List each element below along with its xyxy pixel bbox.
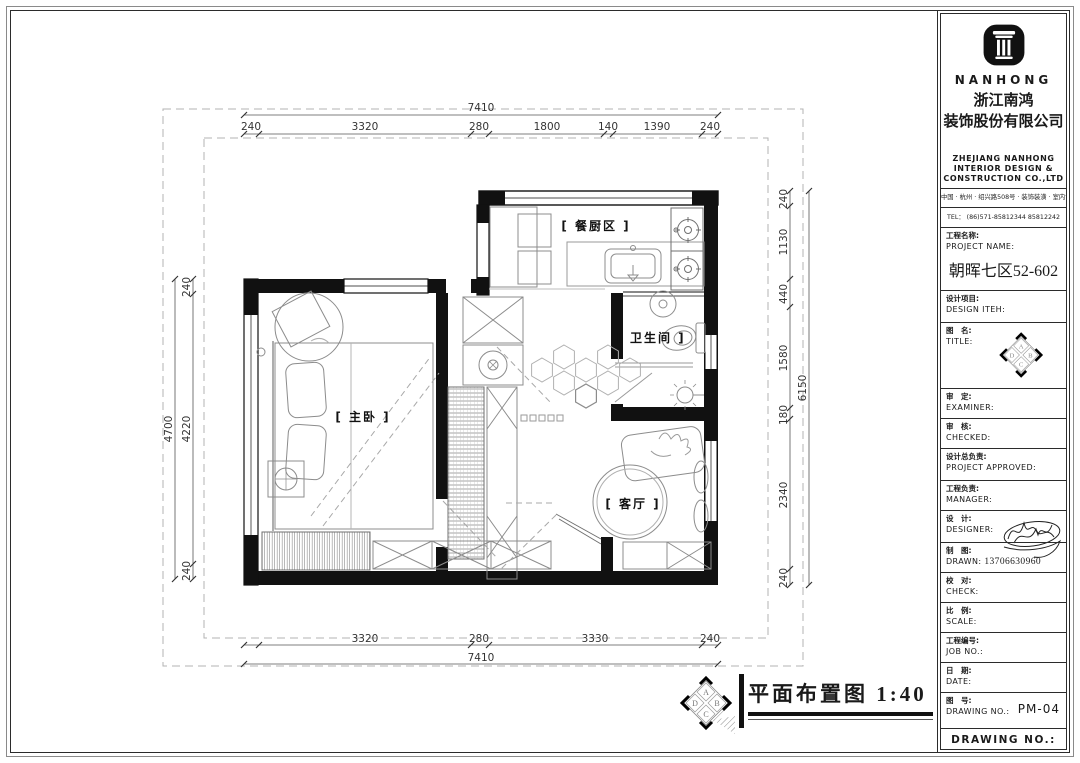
room-label-bathroom: [ 卫生间 ] bbox=[616, 330, 685, 345]
dim-top-4: 140 bbox=[598, 121, 618, 133]
floor-plan-svg: 7410 240 3320 280 1800 140 1390 240 3320… bbox=[11, 11, 937, 752]
svg-text:B: B bbox=[1028, 353, 1033, 360]
dim-bottom-1: 280 bbox=[469, 633, 489, 645]
dim-right-4: 180 bbox=[778, 405, 790, 425]
dim-left-1: 4220 bbox=[181, 416, 193, 443]
designer-row: 设 计: DESIGNER: bbox=[941, 510, 1066, 542]
abcd-diamond-logo: A B C D bbox=[996, 329, 1048, 381]
svg-text:C: C bbox=[1019, 362, 1024, 369]
drawn-row: 制 图: DRAWN: 13706630960 bbox=[941, 542, 1066, 572]
compass-letter-d: D bbox=[692, 699, 698, 708]
room-label-living: [ 客厅 ] bbox=[605, 496, 660, 511]
check-row: 校 对: CHECK: bbox=[941, 572, 1066, 602]
checked-row: 审 核: CHECKED: bbox=[941, 418, 1066, 448]
company-name-en: ZHEJIANG NANHONG INTERIOR DESIGN & CONST… bbox=[941, 152, 1066, 188]
title-block: NANHONG 浙江南鸿 装饰股份有限公司 ZHEJIANG NANHONG I… bbox=[937, 11, 1069, 752]
dim-top-2: 280 bbox=[469, 121, 489, 133]
compass-letter-a: A bbox=[703, 688, 709, 697]
examiner-row: 审 定: EXAMINER: bbox=[941, 388, 1066, 418]
date-row: 日 期: DATE: bbox=[941, 662, 1066, 692]
dim-left-2: 240 bbox=[181, 561, 193, 581]
room-labels: [ 餐厨区 ] [ 卫生间 ] [ 主卧 ] [ 客厅 ] bbox=[335, 218, 685, 511]
dim-bottom-2: 3330 bbox=[582, 633, 609, 645]
footer-rule-thin bbox=[748, 719, 933, 720]
design-item-row: 设计项目: DESIGN ITEH: bbox=[941, 290, 1066, 322]
compass-letter-b: B bbox=[714, 699, 719, 708]
sheet-inner-border: 7410 240 3320 280 1800 140 1390 240 3320… bbox=[10, 10, 1070, 753]
room-label-bedroom: [ 主卧 ] bbox=[335, 409, 390, 424]
company-name-cn-2: 装饰股份有限公司 bbox=[941, 110, 1066, 131]
tv-cabinets bbox=[373, 514, 711, 569]
dim-left-0: 240 bbox=[181, 277, 193, 297]
dim-top-total: 7410 bbox=[468, 102, 495, 114]
notes-section: DRAWING NO.: 未经本公司设计师书面 许可不得翻阅或作任何 分翻印、抄… bbox=[941, 728, 1066, 750]
floor-plan-area: 7410 240 3320 280 1800 140 1390 240 3320… bbox=[11, 11, 937, 752]
svg-text:D: D bbox=[1010, 353, 1015, 360]
dim-bottom-total: 7410 bbox=[468, 652, 495, 664]
dim-top-5: 1390 bbox=[644, 121, 671, 133]
footer-divider-bar bbox=[739, 674, 744, 728]
drawing-sheet: 7410 240 3320 280 1800 140 1390 240 3320… bbox=[0, 0, 1080, 763]
dim-right-3: 1580 bbox=[778, 345, 790, 372]
project-approved-row: 设计总负责: PROJECT APPROVED: bbox=[941, 448, 1066, 480]
dim-top-1: 3320 bbox=[352, 121, 379, 133]
scale-row: 比 例: SCALE: bbox=[941, 602, 1066, 632]
svg-text:A: A bbox=[1019, 343, 1024, 350]
dim-right-5: 2340 bbox=[778, 482, 790, 509]
project-label-cn: 工程名称: bbox=[946, 230, 1061, 241]
dim-left-total: 4700 bbox=[163, 416, 175, 443]
company-name-cn-1: 浙江南鸿 bbox=[941, 89, 1066, 110]
column-logo-icon bbox=[983, 24, 1025, 66]
title-row: 图 名: TITLE: A B C D bbox=[941, 322, 1066, 388]
compass-letter-c: C bbox=[703, 710, 708, 719]
company-logo-section: NANHONG 浙江南鸿 装饰股份有限公司 bbox=[941, 14, 1066, 152]
job-no-row: 工程编号: JOB NO.: bbox=[941, 632, 1066, 662]
dim-top-0: 240 bbox=[241, 121, 261, 133]
dim-right-0: 240 bbox=[778, 189, 790, 209]
drawn-phone-value: 13706630960 bbox=[984, 557, 1041, 567]
company-tel: TEL： (86)571-85812344 85812242 bbox=[941, 207, 1066, 227]
project-name-section: 工程名称: PROJECT NAME: 朝晖七区52-602 bbox=[941, 227, 1066, 290]
bedroom-furniture bbox=[257, 291, 439, 570]
living-room-furniture bbox=[593, 425, 708, 539]
sheet-outer-border: 7410 240 3320 280 1800 140 1390 240 3320… bbox=[6, 6, 1074, 757]
project-name-value: 朝晖七区52-602 bbox=[946, 257, 1061, 281]
dim-top-3: 1800 bbox=[534, 121, 561, 133]
dim-bottom-0: 3320 bbox=[352, 633, 379, 645]
company-address: 中国 · 杭州 · 绍兴路508号 · 装饰装潢 · 室内设计 bbox=[941, 188, 1066, 207]
footer-rule-thick bbox=[748, 712, 933, 716]
dim-right-6: 240 bbox=[778, 568, 790, 588]
drawing-no-value: PM-04 bbox=[1018, 702, 1060, 716]
notes-header: DRAWING NO.: bbox=[947, 734, 1060, 746]
dim-top-6: 240 bbox=[700, 121, 720, 133]
dim-right-2: 440 bbox=[778, 284, 790, 304]
brand-name: NANHONG bbox=[941, 73, 1066, 87]
dim-right-total: 6150 bbox=[797, 375, 809, 402]
drawing-no-row: 图 号: DRAWING NO.: PM-04 bbox=[941, 692, 1066, 728]
project-label-en: PROJECT NAME: bbox=[946, 242, 1061, 251]
drawing-title-bar: A B C D 平面布置图 bbox=[677, 672, 933, 736]
dim-bottom-3: 240 bbox=[700, 633, 720, 645]
bathroom-fixtures bbox=[615, 291, 705, 410]
drawing-title: 平面布置图 1:40 bbox=[748, 678, 933, 708]
room-label-kitchen: [ 餐厨区 ] bbox=[561, 218, 630, 233]
footer-compass-logo: A B C D bbox=[677, 672, 737, 736]
closet-washer-wardrobe bbox=[448, 297, 523, 579]
dim-right-1: 1130 bbox=[778, 229, 790, 256]
manager-row: 工程负责: MANAGER: bbox=[941, 480, 1066, 510]
